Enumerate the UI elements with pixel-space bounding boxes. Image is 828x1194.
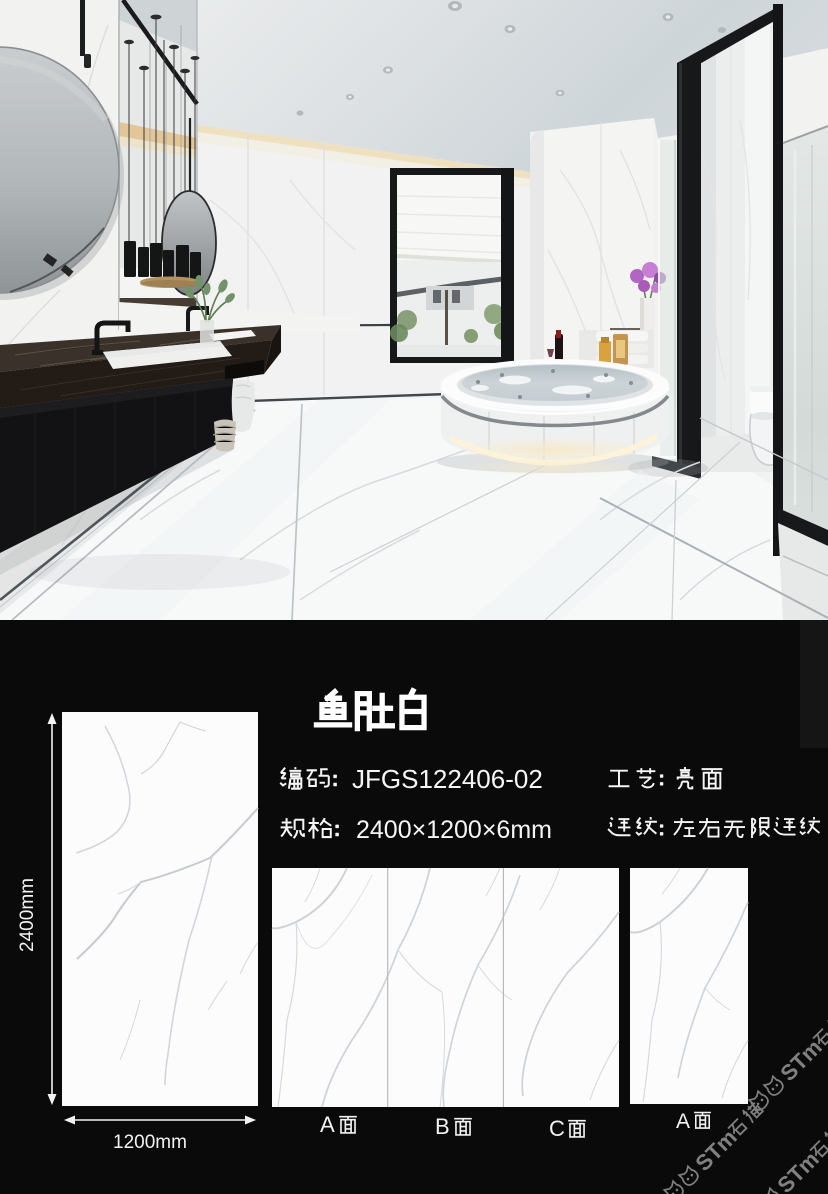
svg-text:B: B: [435, 1114, 450, 1139]
svg-text:1200mm: 1200mm: [113, 1132, 187, 1153]
svg-text:2400×1200×6mm: 2400×1200×6mm: [356, 816, 552, 844]
svg-text:A: A: [676, 1110, 690, 1133]
svg-text:A: A: [320, 1112, 335, 1137]
svg-text:JFGS122406-02: JFGS122406-02: [352, 764, 543, 794]
svg-text:2400mm: 2400mm: [17, 878, 38, 952]
svg-text:C: C: [549, 1116, 565, 1141]
